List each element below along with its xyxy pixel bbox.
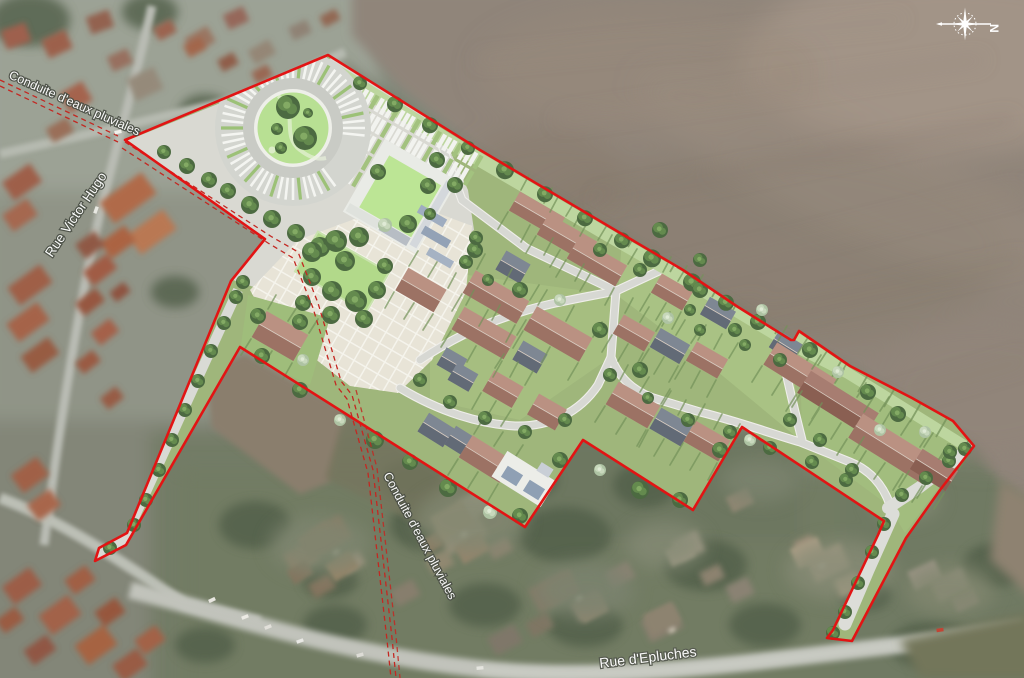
svg-text:N: N (987, 24, 1001, 33)
